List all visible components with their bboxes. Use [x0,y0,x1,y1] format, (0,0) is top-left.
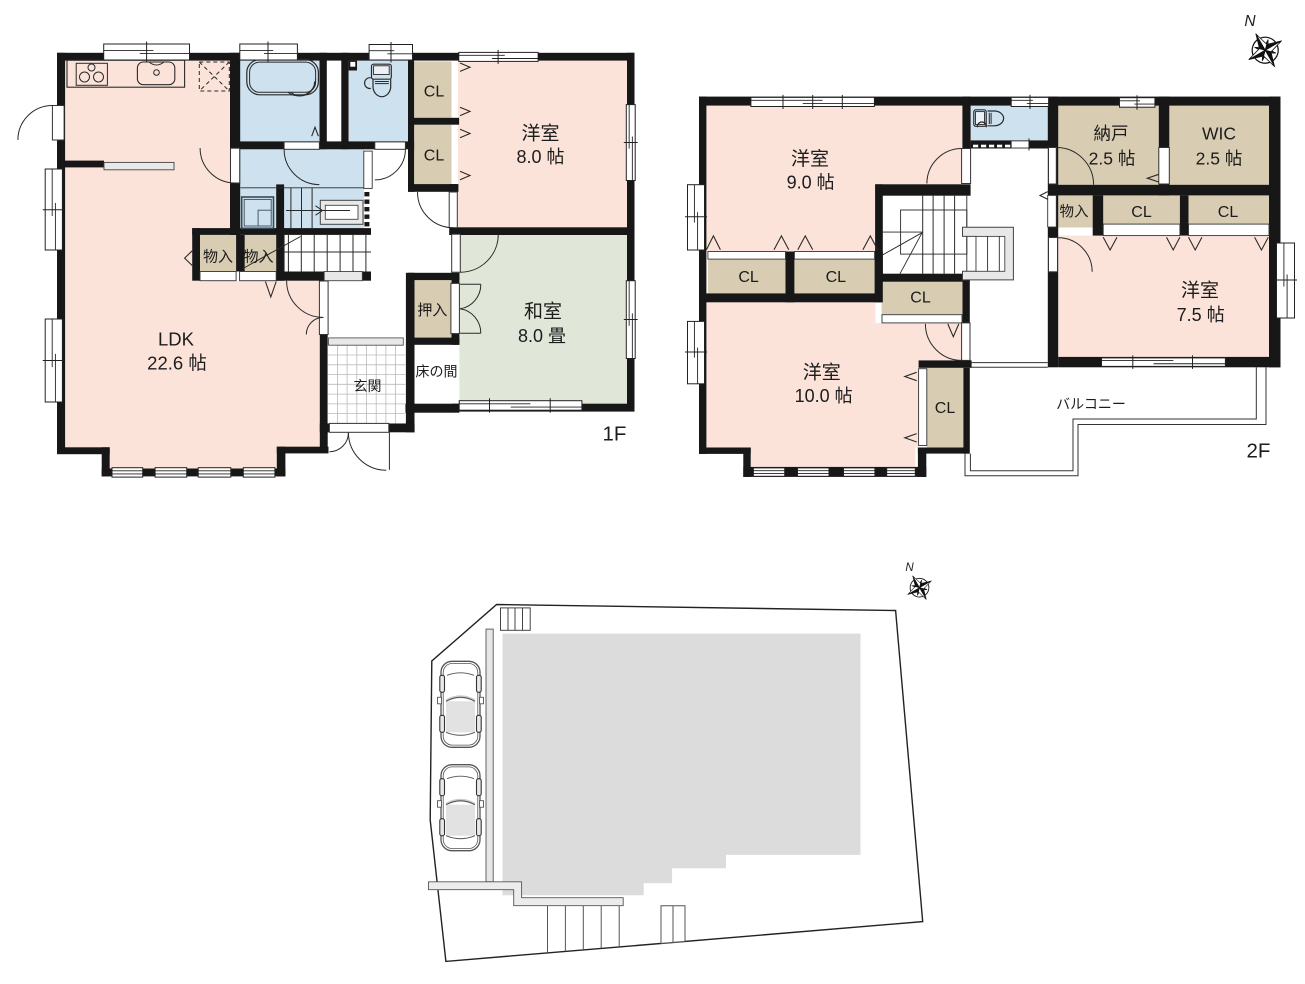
svg-text:CL: CL [1218,204,1239,221]
svg-text:洋室: 洋室 [791,148,829,170]
svg-text:8.0 帖: 8.0 帖 [516,147,564,167]
svg-text:7.5 帖: 7.5 帖 [1177,305,1225,325]
svg-text:9.0 帖: 9.0 帖 [787,172,835,192]
svg-text:10.0 帖: 10.0 帖 [795,386,853,406]
svg-text:LDK: LDK [158,329,195,350]
svg-text:洋室: 洋室 [803,361,841,383]
svg-text:N: N [905,562,914,574]
svg-text:物入: 物入 [243,249,273,266]
svg-text:N: N [1244,13,1256,30]
svg-text:8.0 畳: 8.0 畳 [518,326,566,346]
svg-text:物入: 物入 [203,249,233,266]
svg-text:和室: 和室 [524,300,562,322]
svg-text:押入: 押入 [417,302,447,319]
svg-text:1F: 1F [603,422,627,445]
svg-text:玄関: 玄関 [354,378,382,394]
svg-text:CL: CL [826,269,847,286]
svg-text:CL: CL [935,400,956,417]
svg-text:洋室: 洋室 [521,122,559,144]
svg-text:CL: CL [910,290,931,307]
svg-text:CL: CL [424,84,445,101]
svg-text:床の間: 床の間 [416,364,458,380]
svg-text:CL: CL [424,148,445,165]
svg-text:2.5 帖: 2.5 帖 [1196,149,1243,169]
svg-text:バルコニー: バルコニー [1056,396,1126,412]
svg-text:CL: CL [1131,204,1152,221]
svg-text:2.5 帖: 2.5 帖 [1089,149,1136,169]
svg-text:洋室: 洋室 [1181,279,1219,301]
svg-text:納戸: 納戸 [1094,124,1129,144]
svg-text:物入: 物入 [1060,204,1089,221]
svg-text:22.6 帖: 22.6 帖 [147,353,207,374]
svg-text:2F: 2F [1247,439,1271,462]
svg-text:WIC: WIC [1202,124,1236,144]
svg-text:CL: CL [738,269,759,286]
